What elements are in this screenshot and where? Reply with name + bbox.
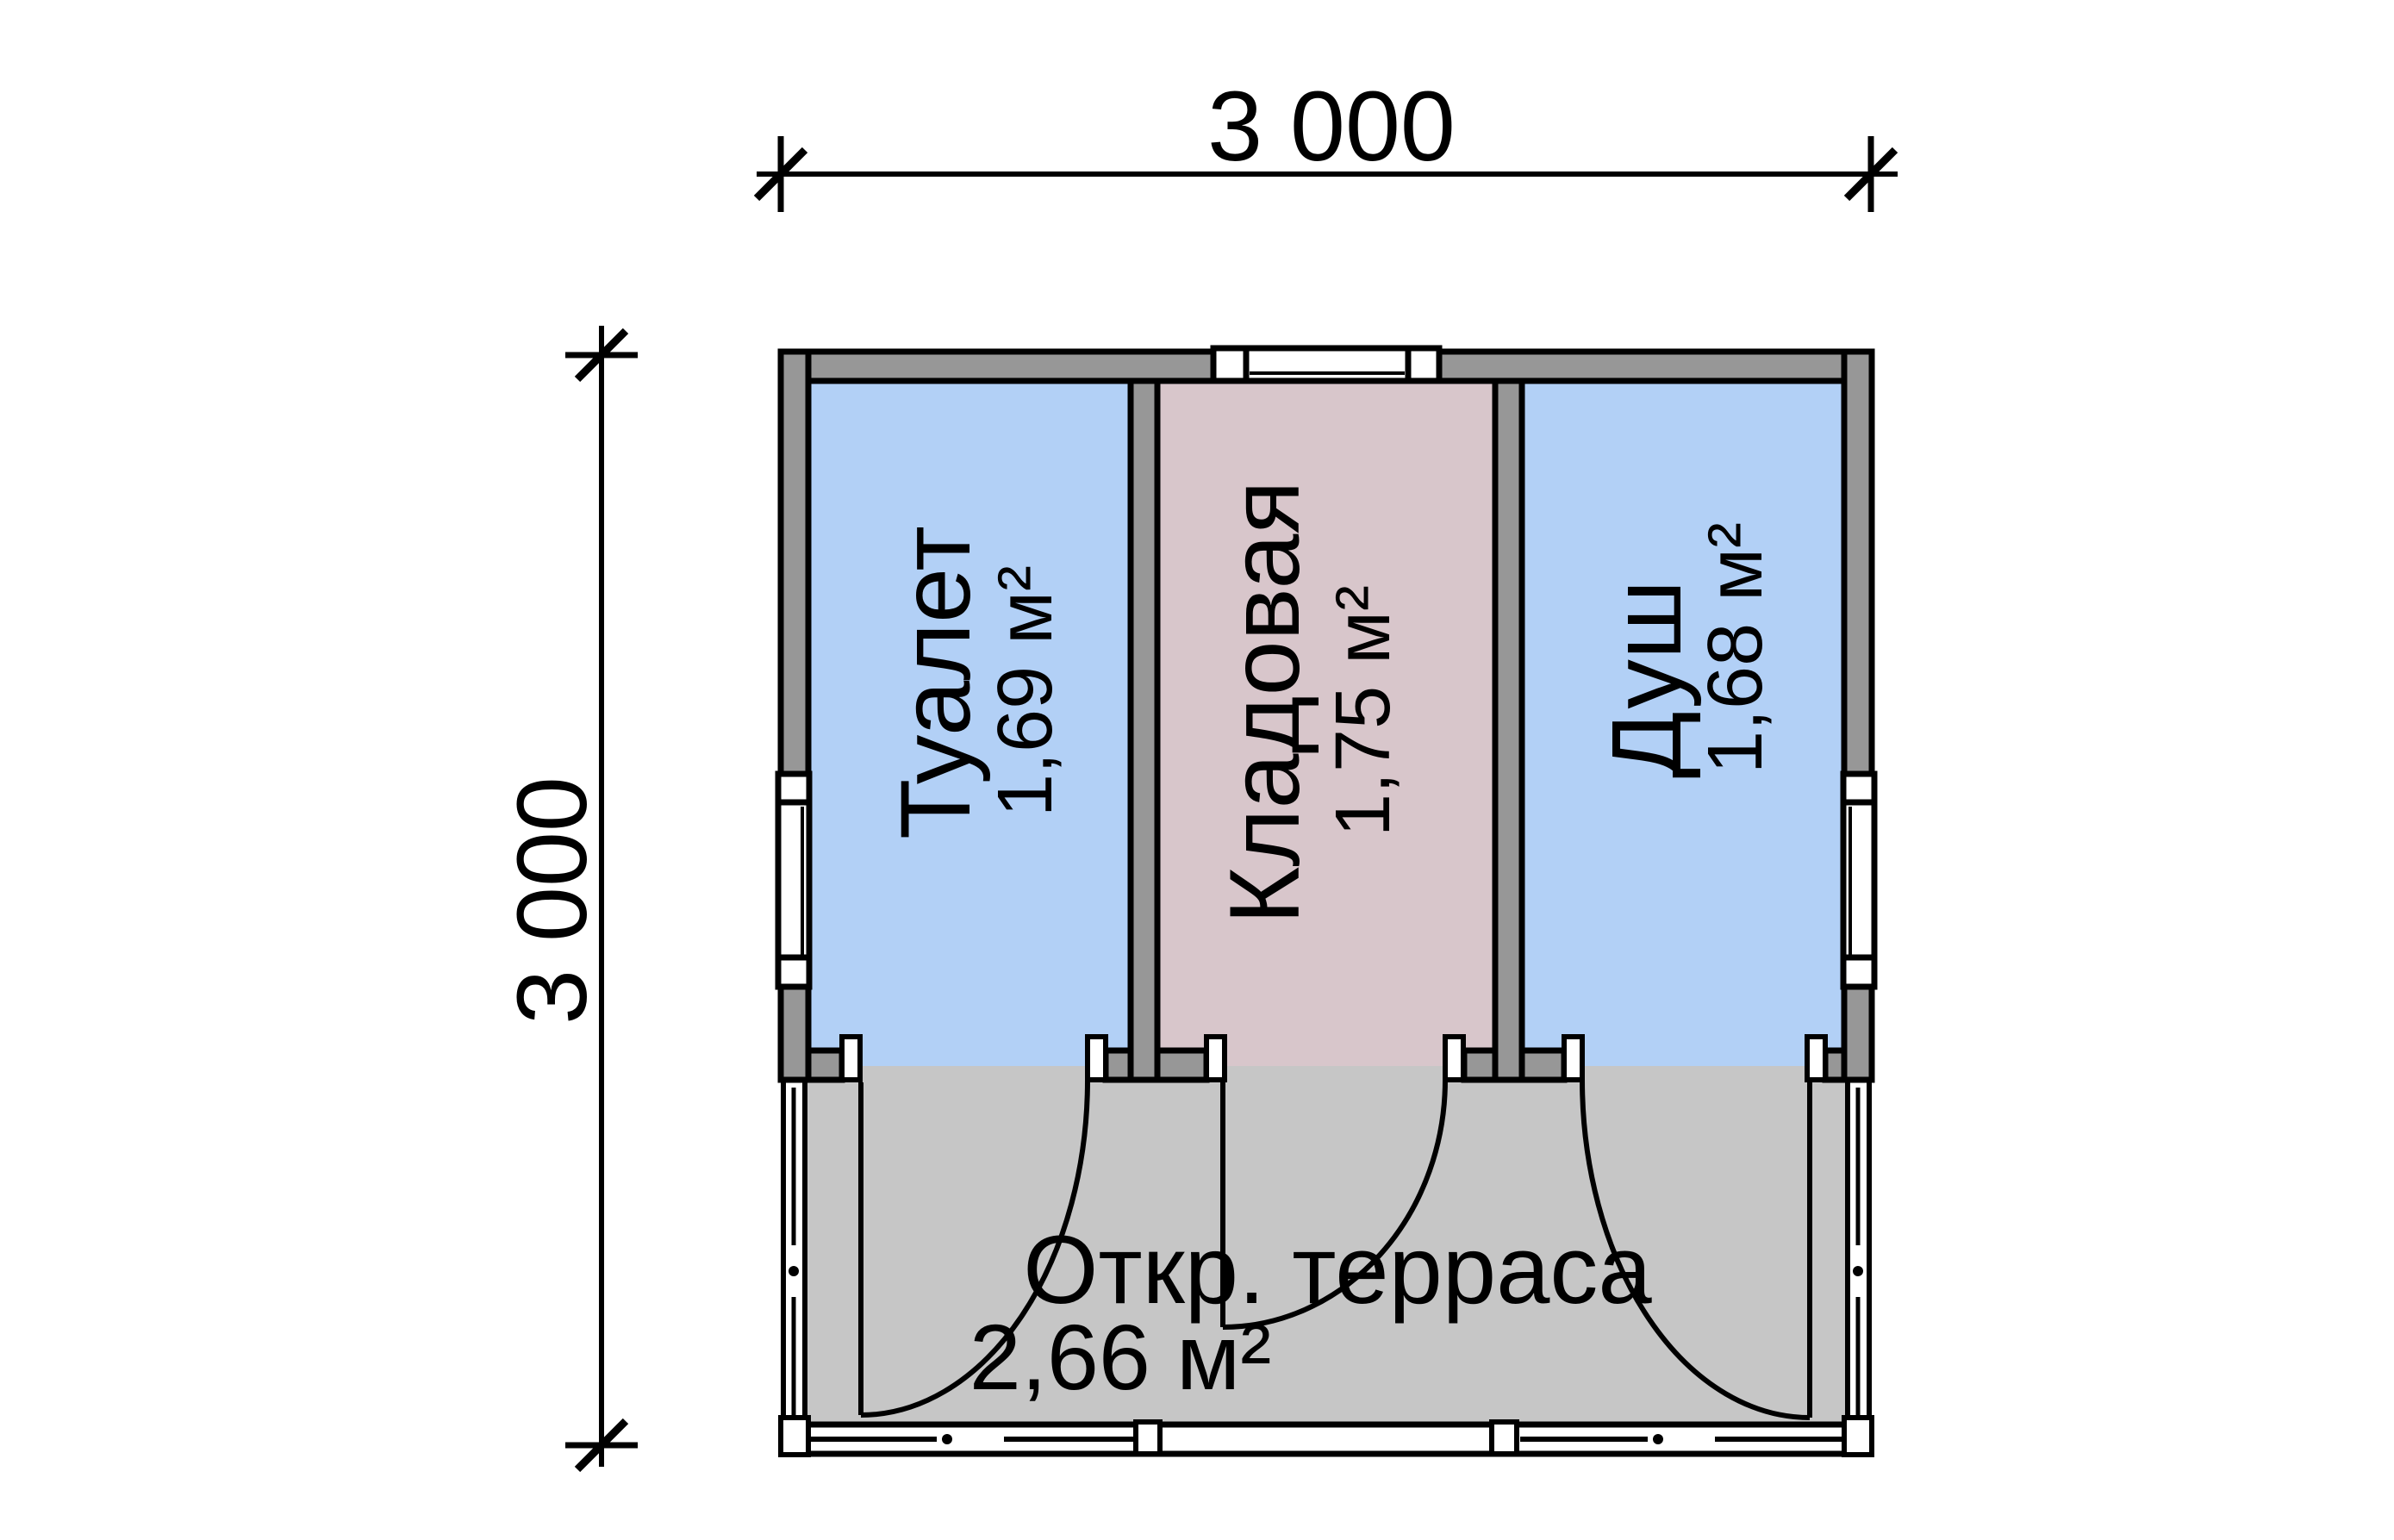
label-storage-area: 1,75 м² bbox=[1320, 585, 1406, 837]
label-storage-name: Кладовая bbox=[1210, 480, 1320, 924]
door-jamb bbox=[1445, 1037, 1463, 1080]
label-shower-area: 1,68 м² bbox=[1693, 522, 1779, 774]
railing-corner-post bbox=[1844, 1418, 1872, 1455]
label-shower-name: Душ bbox=[1592, 580, 1702, 778]
railing-post-dot bbox=[1653, 1434, 1663, 1444]
window-top bbox=[1213, 348, 1439, 381]
wall-interior-toilet-storage bbox=[1131, 381, 1157, 1080]
window-left bbox=[778, 774, 809, 987]
window-right bbox=[1843, 774, 1874, 987]
label-toilet-name: Туалет bbox=[881, 526, 991, 839]
railing-corner-post bbox=[781, 1418, 808, 1455]
label-terrace-area: 2,66 м² bbox=[969, 1305, 1271, 1409]
door-jamb bbox=[842, 1037, 860, 1080]
floor-plan-canvas: 3 000 3 000 Туалет 1,69 м² Кладовая 1,75… bbox=[0, 0, 2394, 1540]
wall-stub bbox=[808, 1051, 842, 1080]
label-toilet-area: 1,69 м² bbox=[982, 565, 1069, 817]
railing-post bbox=[1492, 1422, 1517, 1454]
door-jamb bbox=[1807, 1037, 1825, 1080]
dimension-top-value: 3 000 bbox=[1207, 72, 1456, 182]
door-jamb bbox=[1206, 1037, 1225, 1080]
dimension-left-value: 3 000 bbox=[497, 776, 608, 1025]
railing-post bbox=[1136, 1422, 1160, 1454]
door-jamb bbox=[1088, 1037, 1106, 1080]
railing-post-dot bbox=[942, 1434, 952, 1444]
railing-post-dot bbox=[1853, 1266, 1863, 1276]
floor-plan-drawing: 3 000 3 000 Туалет 1,69 м² Кладовая 1,75… bbox=[0, 0, 2394, 1540]
door-jamb bbox=[1564, 1037, 1582, 1080]
railing-post-dot bbox=[789, 1266, 799, 1276]
wall-interior-storage-shower bbox=[1495, 381, 1522, 1080]
